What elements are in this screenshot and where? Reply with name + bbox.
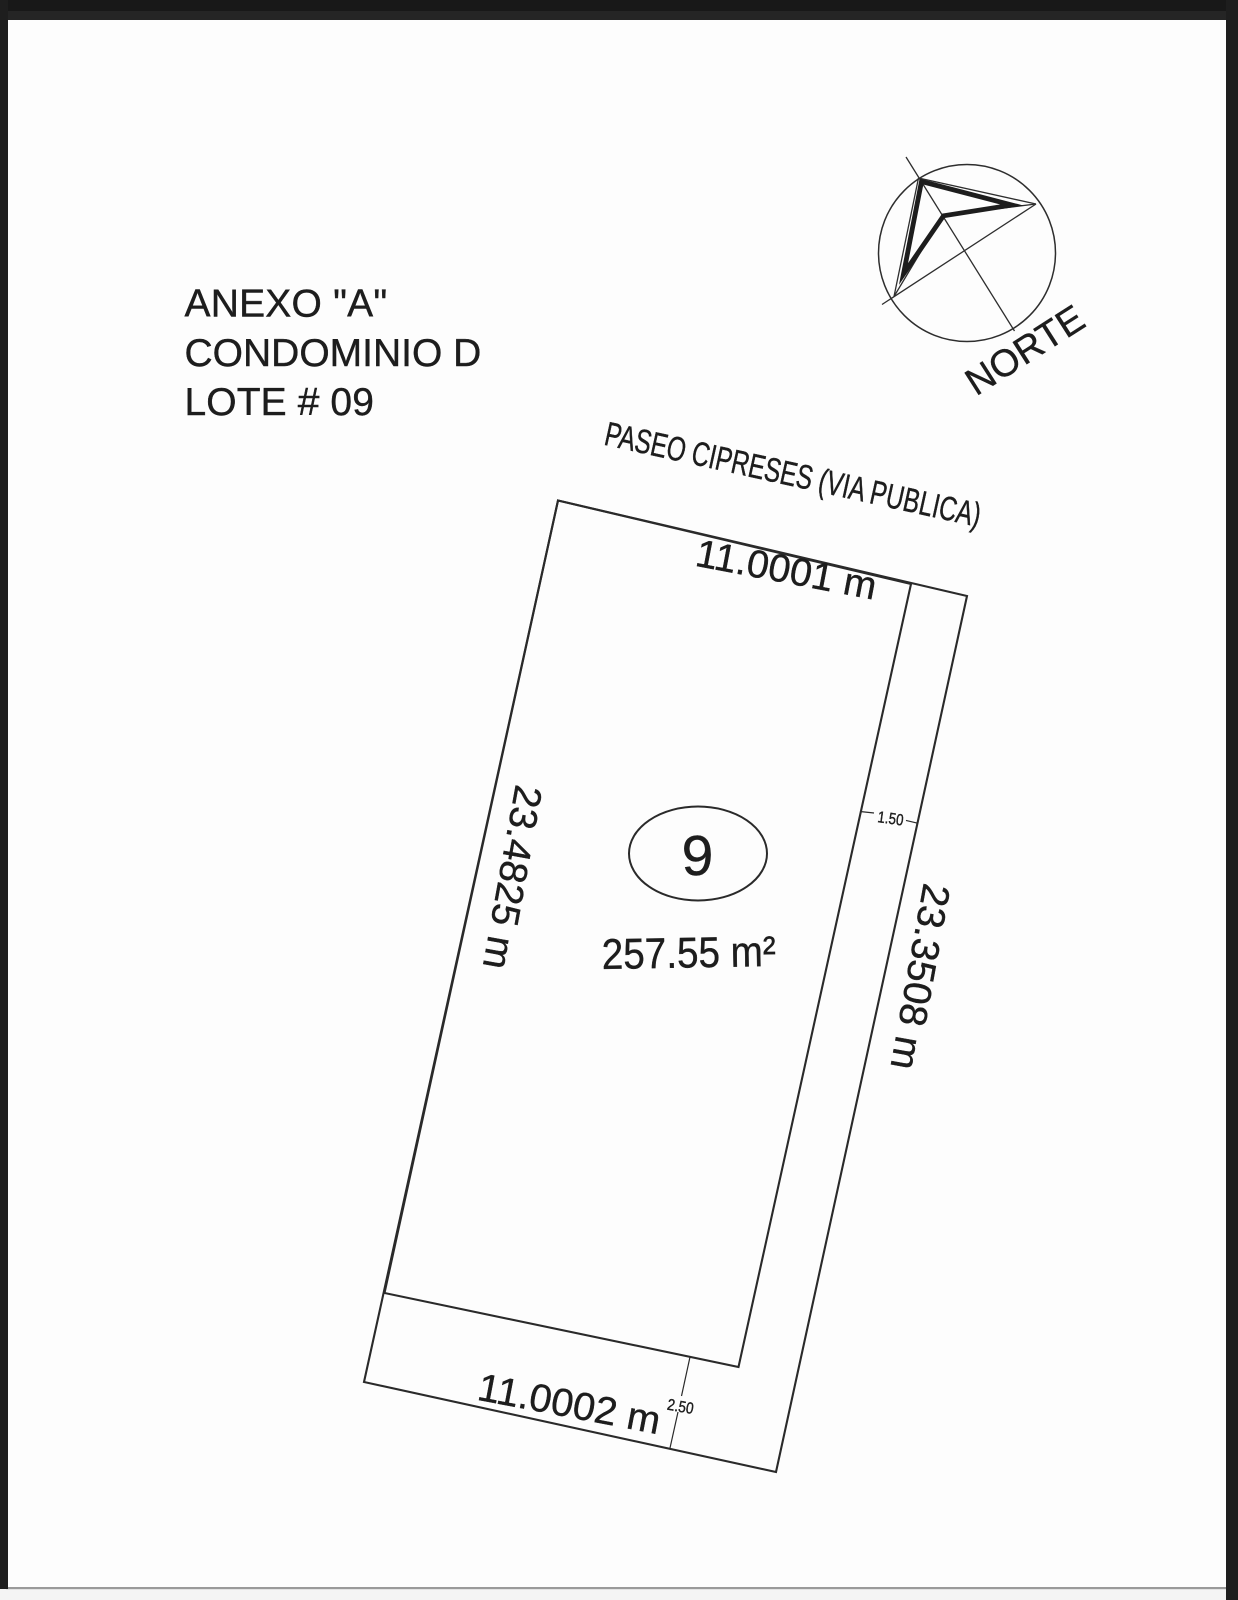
svg-text:CONDOMINIO D: CONDOMINIO D [185, 332, 482, 375]
svg-text:9: 9 [682, 824, 714, 888]
svg-text:LOTE # 09: LOTE # 09 [185, 381, 375, 424]
svg-text:ANEXO "A": ANEXO "A" [185, 283, 388, 326]
svg-text:1.50: 1.50 [876, 809, 904, 829]
svg-text:257.55 m²: 257.55 m² [601, 928, 776, 979]
